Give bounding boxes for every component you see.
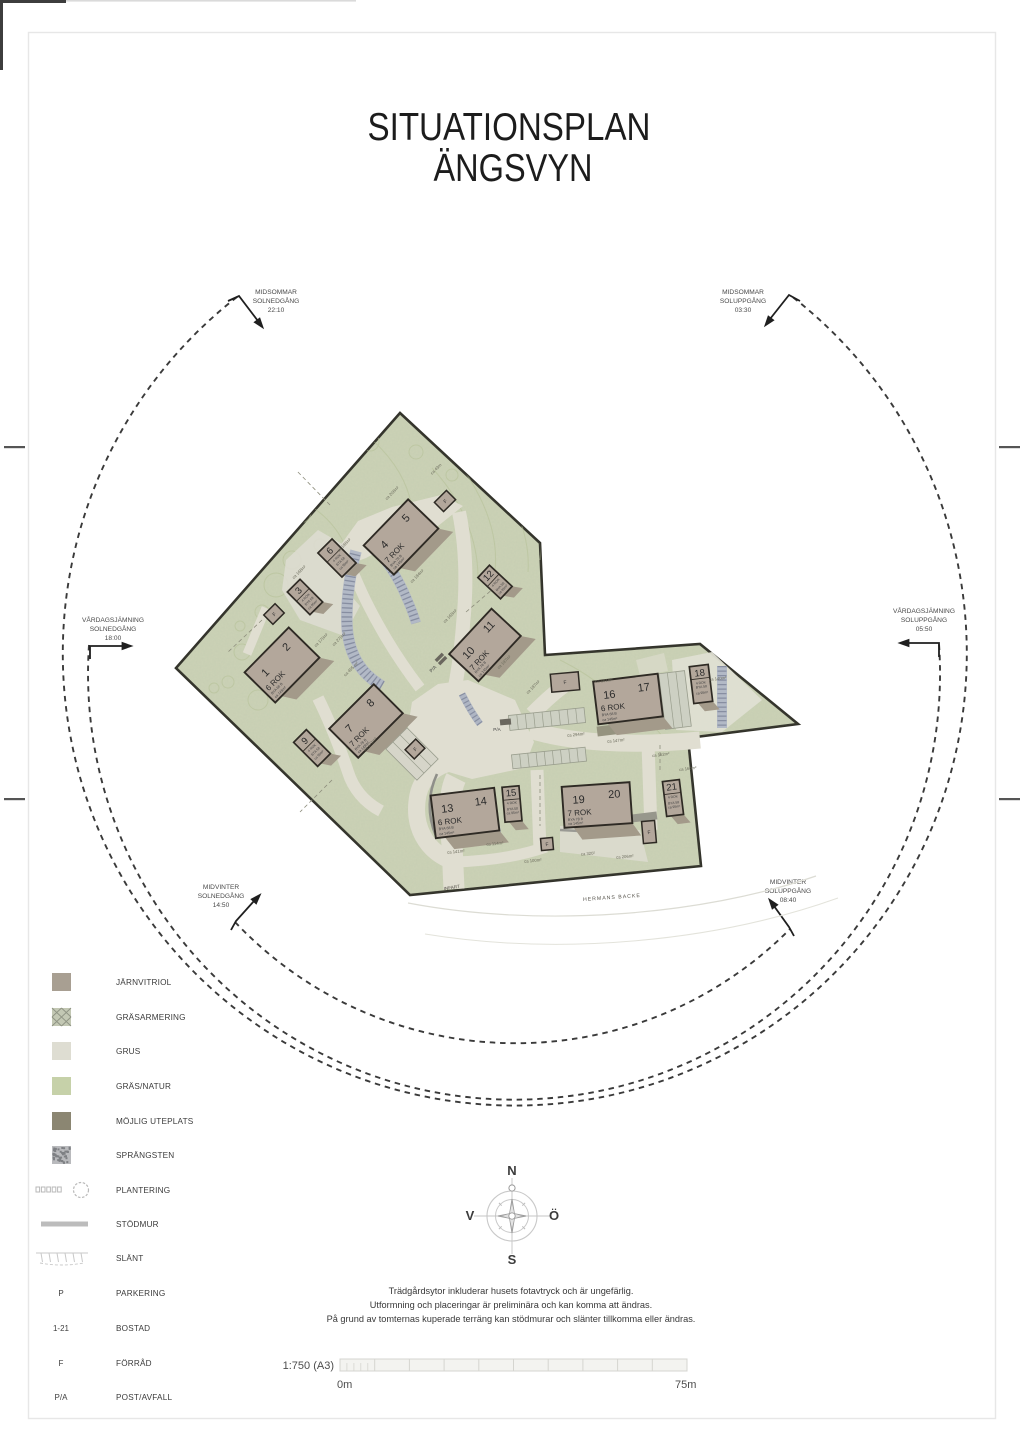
svg-text:13: 13 [441,802,455,815]
svg-text:MIDVINTER: MIDVINTER [203,884,240,891]
svg-text:SITUATIONSPLAN: SITUATIONSPLAN [368,106,651,149]
svg-text:GRUS: GRUS [116,1047,141,1056]
svg-text:P/A: P/A [493,727,501,732]
svg-text:BOSTAD: BOSTAD [116,1324,150,1333]
svg-text:1:750 (A3): 1:750 (A3) [283,1360,334,1372]
svg-text:GRÄS/NATUR: GRÄS/NATUR [116,1081,171,1091]
svg-text:F: F [563,680,567,686]
svg-text:F: F [545,842,549,848]
svg-text:P: P [58,1289,63,1298]
svg-text:GRÄSARMERING: GRÄSARMERING [116,1012,186,1022]
svg-text:JÄRNVITRIOL: JÄRNVITRIOL [116,977,172,987]
svg-text:MIDSOMMAR: MIDSOMMAR [255,289,297,296]
svg-text:14:50: 14:50 [213,902,230,909]
svg-text:17: 17 [637,681,651,694]
svg-text:05:50: 05:50 [916,626,933,633]
svg-text:ÄNGSVYN: ÄNGSVYN [434,147,593,190]
svg-text:Utformning och placeringar är: Utformning och placeringar är preliminär… [370,1300,652,1310]
svg-text:21: 21 [666,781,678,793]
svg-text:S: S [508,1252,517,1267]
svg-text:POST/AVFALL: POST/AVFALL [116,1393,172,1402]
svg-text:SOLUPPGÅNG: SOLUPPGÅNG [720,296,766,305]
svg-text:SPRÄNGSTEN: SPRÄNGSTEN [116,1150,174,1160]
svg-text:VÅRDAGSJÄMNING: VÅRDAGSJÄMNING [82,615,144,624]
svg-text:P/A: P/A [55,1393,69,1402]
svg-text:PLANTERING: PLANTERING [116,1186,170,1195]
svg-text:F: F [59,1359,64,1368]
svg-text:MÖJLIG UTEPLATS: MÖJLIG UTEPLATS [116,1116,194,1126]
svg-text:SOLUPPGÅNG: SOLUPPGÅNG [765,886,811,895]
svg-text:N: N [507,1163,516,1178]
svg-text:18:00: 18:00 [105,635,122,642]
svg-text:PARKERING: PARKERING [116,1289,165,1298]
svg-text:V: V [466,1208,475,1223]
svg-text:16: 16 [603,689,617,702]
svg-text:08:40: 08:40 [780,897,797,904]
svg-text:SOLNEDGÅNG: SOLNEDGÅNG [198,891,245,900]
svg-text:SOLUPPGÅNG: SOLUPPGÅNG [901,615,947,624]
svg-text:SLÄNT: SLÄNT [116,1253,143,1263]
svg-text:SOLNEDGÅNG: SOLNEDGÅNG [253,296,300,305]
svg-text:15: 15 [505,788,516,800]
svg-text:0m: 0m [337,1379,352,1391]
svg-text:14: 14 [474,795,488,808]
svg-text:SOLNEDGÅNG: SOLNEDGÅNG [90,624,137,633]
svg-text:MIDSOMMAR: MIDSOMMAR [722,289,764,296]
svg-text:På grund av tomternas kuperade: På grund av tomternas kuperade terräng k… [327,1314,696,1324]
svg-text:75m: 75m [675,1379,696,1391]
svg-text:FÖRRÅD: FÖRRÅD [116,1358,152,1368]
svg-text:19: 19 [572,794,585,807]
svg-text:22:10: 22:10 [268,307,285,314]
svg-text:VÅRDAGSJÄMNING: VÅRDAGSJÄMNING [893,606,955,615]
svg-text:03:30: 03:30 [735,307,752,314]
svg-text:STÖDMUR: STÖDMUR [116,1219,159,1229]
svg-text:20: 20 [608,788,621,801]
svg-text:F: F [647,830,651,836]
svg-text:1-21: 1-21 [53,1324,70,1333]
svg-text:Ö: Ö [549,1208,559,1223]
svg-text:Trädgårdsytor inkluderar huset: Trädgårdsytor inkluderar husets fotavtry… [389,1286,634,1296]
